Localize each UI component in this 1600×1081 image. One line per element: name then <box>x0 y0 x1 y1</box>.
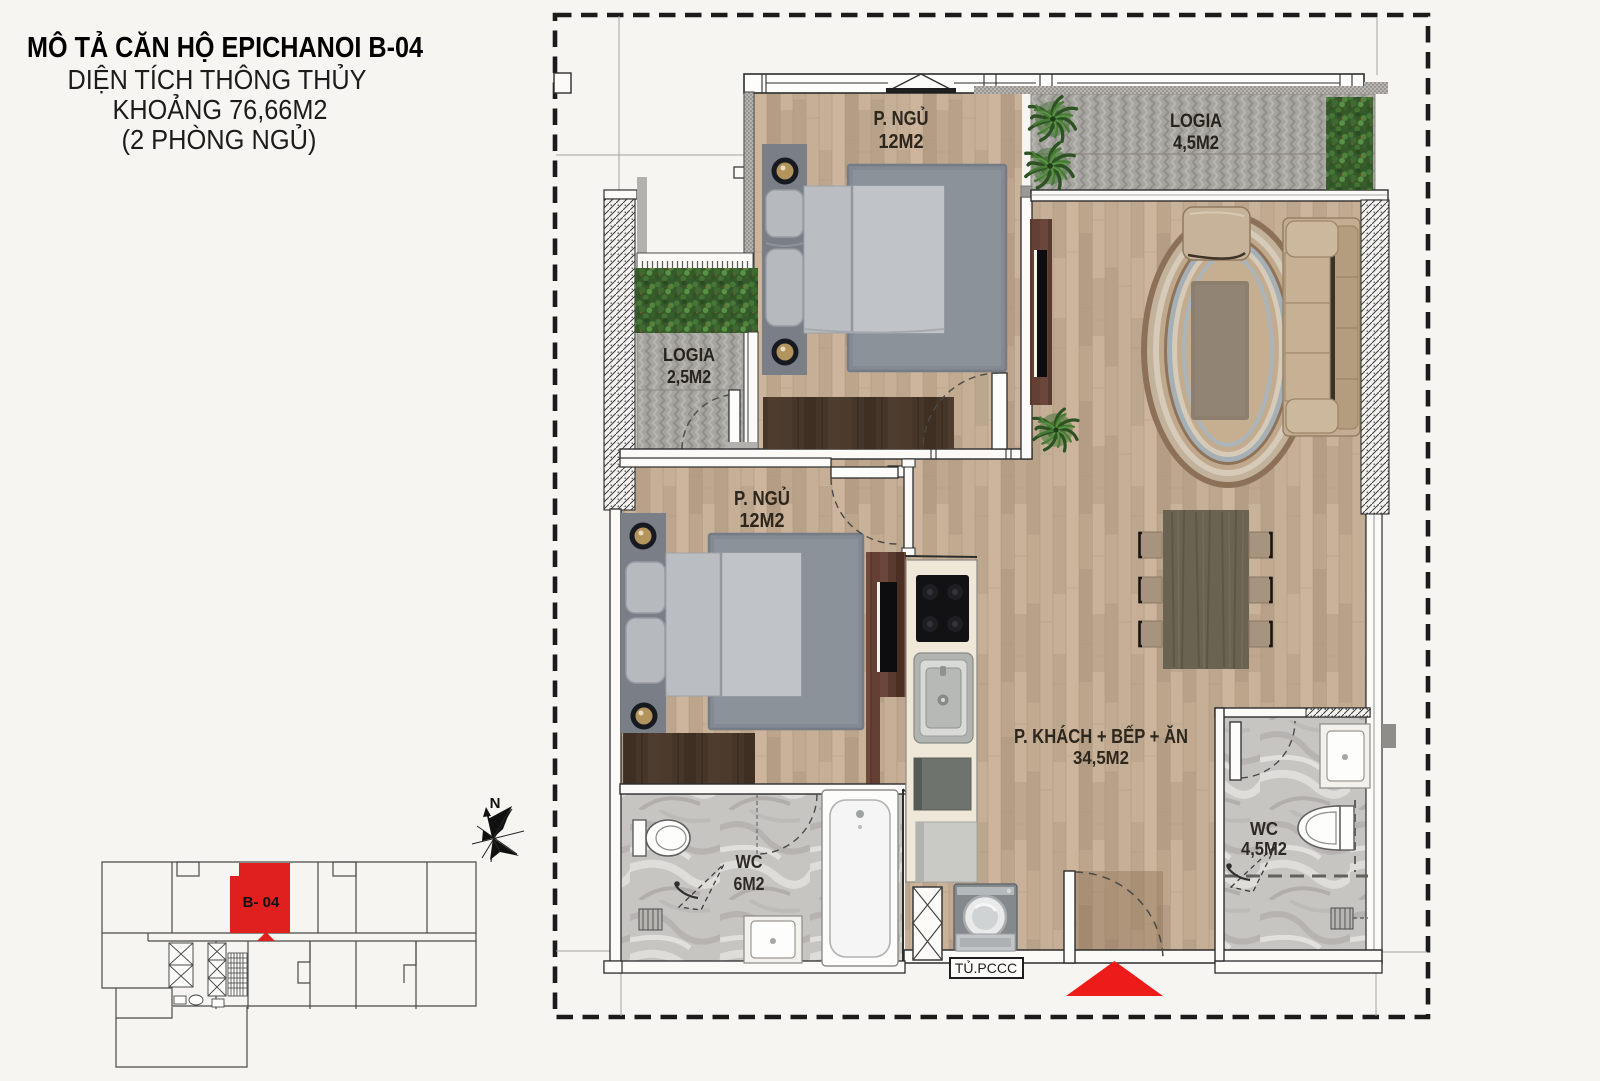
svg-text:TỦ.PCCC: TỦ.PCCC <box>955 959 1017 976</box>
svg-text:34,5M2: 34,5M2 <box>1073 748 1129 768</box>
svg-text:LOGIA: LOGIA <box>663 345 715 365</box>
svg-text:P. NGỦ: P. NGỦ <box>734 486 790 510</box>
svg-text:MÔ TẢ CĂN HỘ EPICHANOI B-04: MÔ TẢ CĂN HỘ EPICHANOI B-04 <box>27 30 423 64</box>
svg-text:WC: WC <box>736 852 763 872</box>
svg-text:WC: WC <box>1250 819 1278 839</box>
svg-text:P. NGỦ: P. NGỦ <box>874 106 929 130</box>
svg-text:DIỆN TÍCH THÔNG THỦY: DIỆN TÍCH THÔNG THỦY <box>68 63 367 95</box>
svg-text:(2 PHÒNG NGỦ): (2 PHÒNG NGỦ) <box>122 123 317 155</box>
svg-text:4,5M2: 4,5M2 <box>1173 133 1219 154</box>
svg-text:4,5M2: 4,5M2 <box>1241 839 1287 859</box>
svg-text:LOGIA: LOGIA <box>1170 111 1222 132</box>
svg-text:N: N <box>490 795 501 812</box>
svg-text:P. KHÁCH + BẾP + ĂN: P. KHÁCH + BẾP + ĂN <box>1014 725 1188 748</box>
svg-text:2,5M2: 2,5M2 <box>667 367 711 387</box>
svg-text:KHOẢNG 76,66M2: KHOẢNG 76,66M2 <box>113 93 328 125</box>
svg-text:12M2: 12M2 <box>879 131 924 153</box>
svg-text:6M2: 6M2 <box>734 874 765 894</box>
svg-text:B- 04: B- 04 <box>243 894 280 911</box>
svg-text:12M2: 12M2 <box>740 510 785 532</box>
